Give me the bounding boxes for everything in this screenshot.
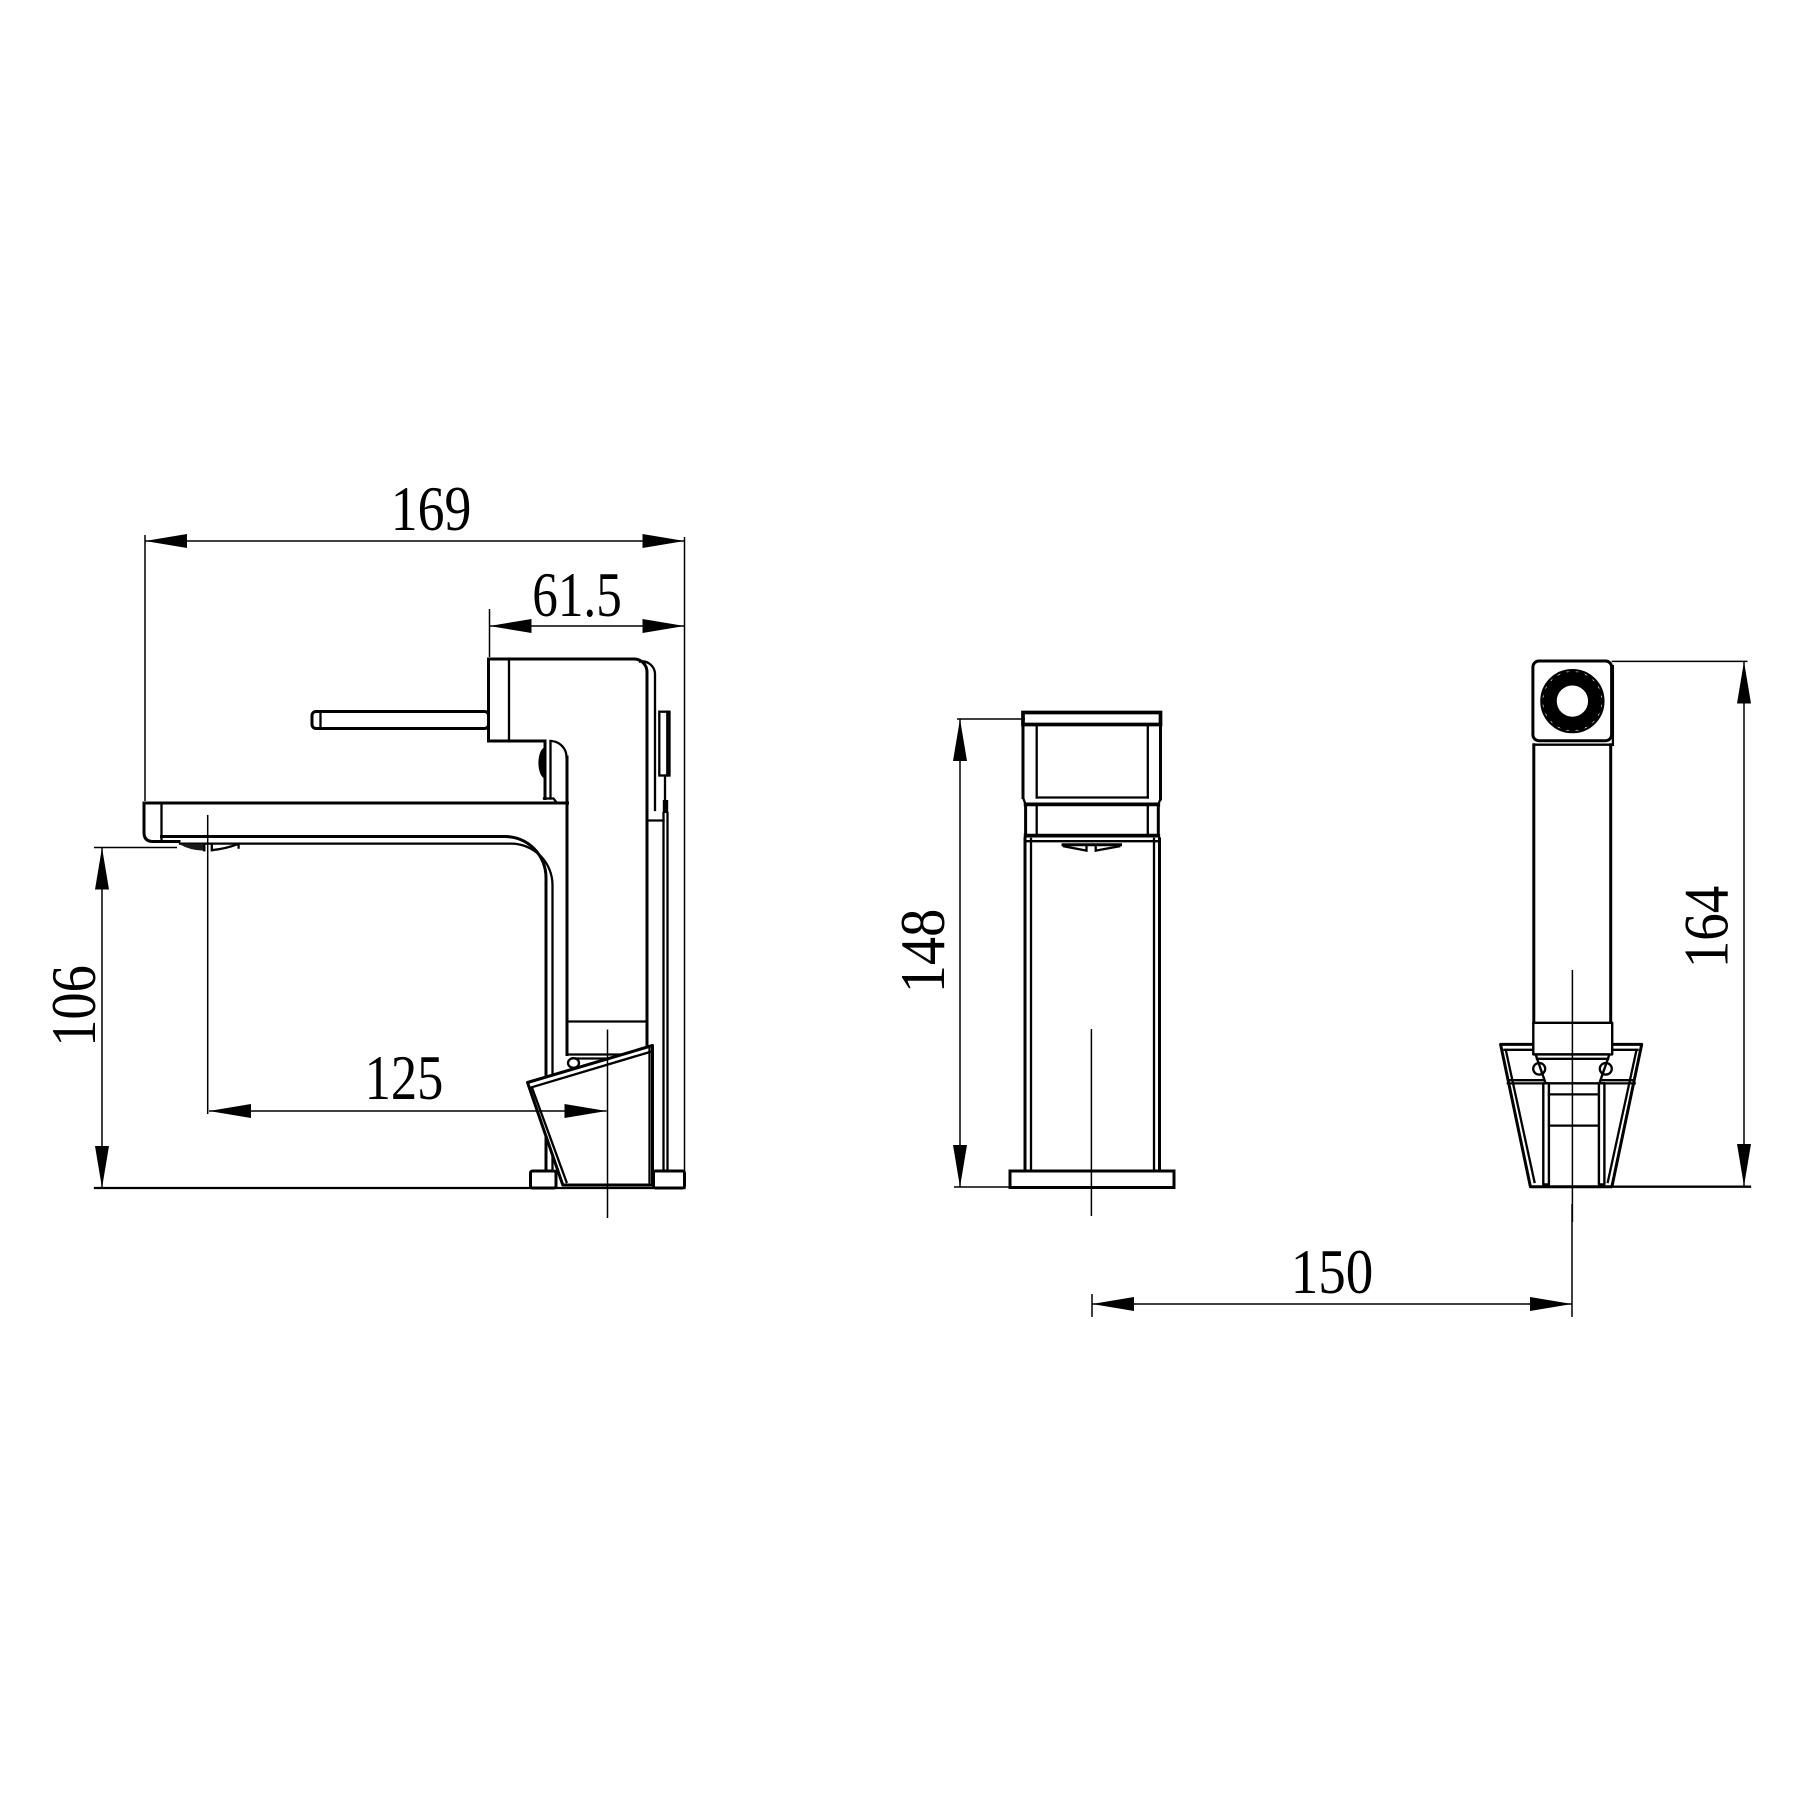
- svg-text:106: 106: [38, 965, 109, 1047]
- svg-text:150: 150: [1291, 1236, 1374, 1307]
- svg-text:164: 164: [1671, 886, 1742, 969]
- svg-text:125: 125: [365, 1042, 444, 1113]
- svg-text:148: 148: [888, 909, 959, 993]
- svg-text:169: 169: [391, 473, 472, 544]
- svg-text:61.5: 61.5: [532, 559, 622, 631]
